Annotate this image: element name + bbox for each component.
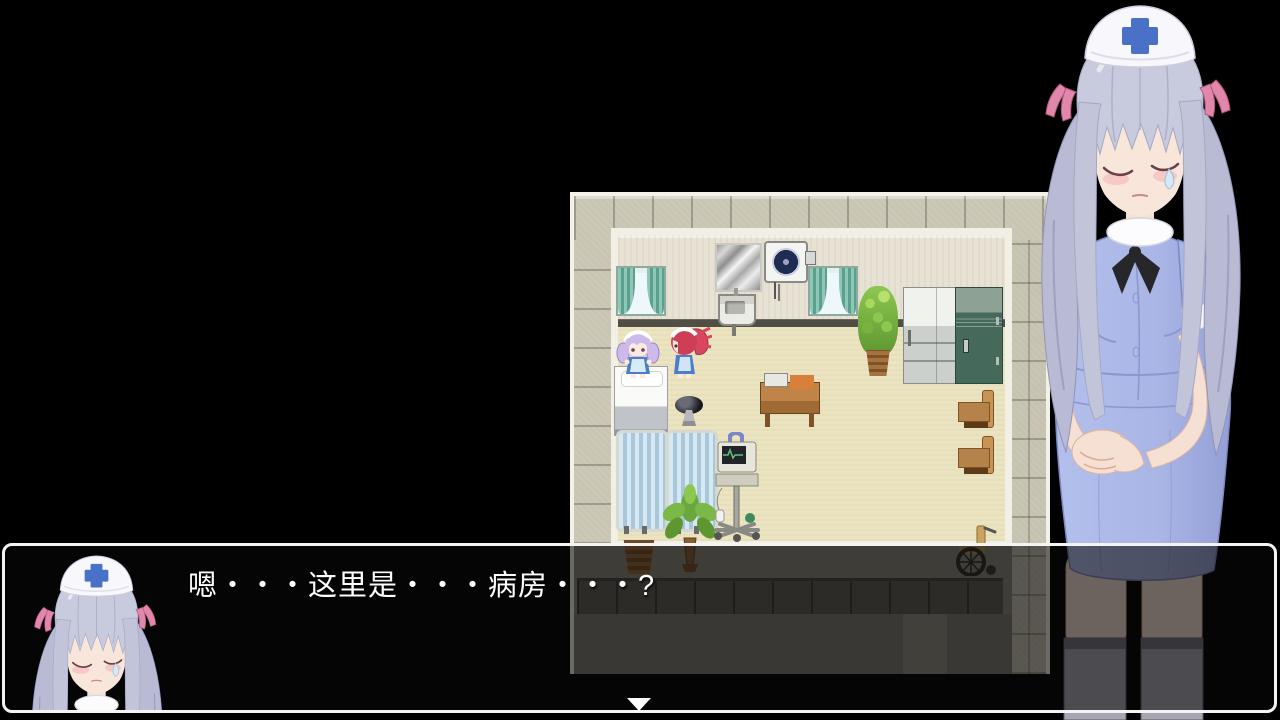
wooden-chair [956, 436, 998, 480]
continue-indicator-icon[interactable] [627, 698, 651, 711]
window-left [616, 266, 666, 316]
window-right [808, 266, 858, 316]
bowl-stool [675, 396, 703, 426]
wooden-chair [956, 390, 998, 434]
game-screen: 嗯・・・这里是・・・病房・・・? [0, 0, 1280, 720]
mirror [715, 243, 762, 292]
potted-plant [858, 286, 898, 376]
refrigerator [903, 287, 957, 384]
outer-wall-left [574, 240, 611, 544]
dialogue-portrait [29, 552, 164, 710]
sink-pipe [732, 324, 736, 336]
dialogue-text: 嗯・・・这里是・・・病房・・・? [188, 562, 655, 604]
maid-lavender-twintails [616, 328, 660, 380]
medical-monitor-iv-stand [710, 432, 762, 544]
wall-sink [718, 294, 756, 326]
dialogue-box[interactable]: 嗯・・・这里是・・・病房・・・? [2, 543, 1277, 713]
maid-red-ponytail [664, 324, 712, 384]
ventilation-fan-icon [764, 241, 808, 283]
food-table [760, 382, 820, 414]
green-locker [955, 287, 1003, 384]
